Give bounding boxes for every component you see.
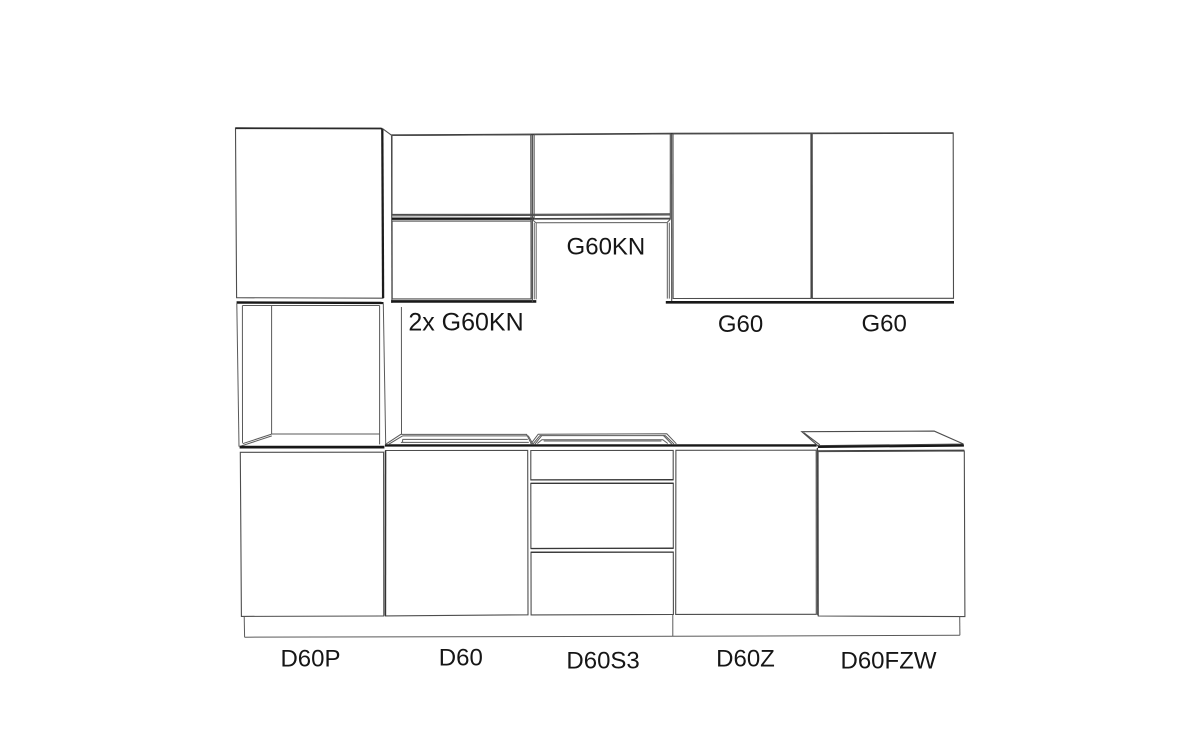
svg-text:2x G60KN: 2x G60KN xyxy=(408,308,523,336)
svg-text:G60: G60 xyxy=(862,310,907,337)
svg-text:D60P: D60P xyxy=(280,645,340,672)
svg-text:G60KN: G60KN xyxy=(567,234,646,261)
svg-text:D60FZW: D60FZW xyxy=(841,648,937,675)
svg-text:G60: G60 xyxy=(718,311,763,338)
svg-text:D60S3: D60S3 xyxy=(566,648,639,675)
svg-text:D60: D60 xyxy=(439,645,483,672)
svg-text:D60Z: D60Z xyxy=(716,645,775,672)
